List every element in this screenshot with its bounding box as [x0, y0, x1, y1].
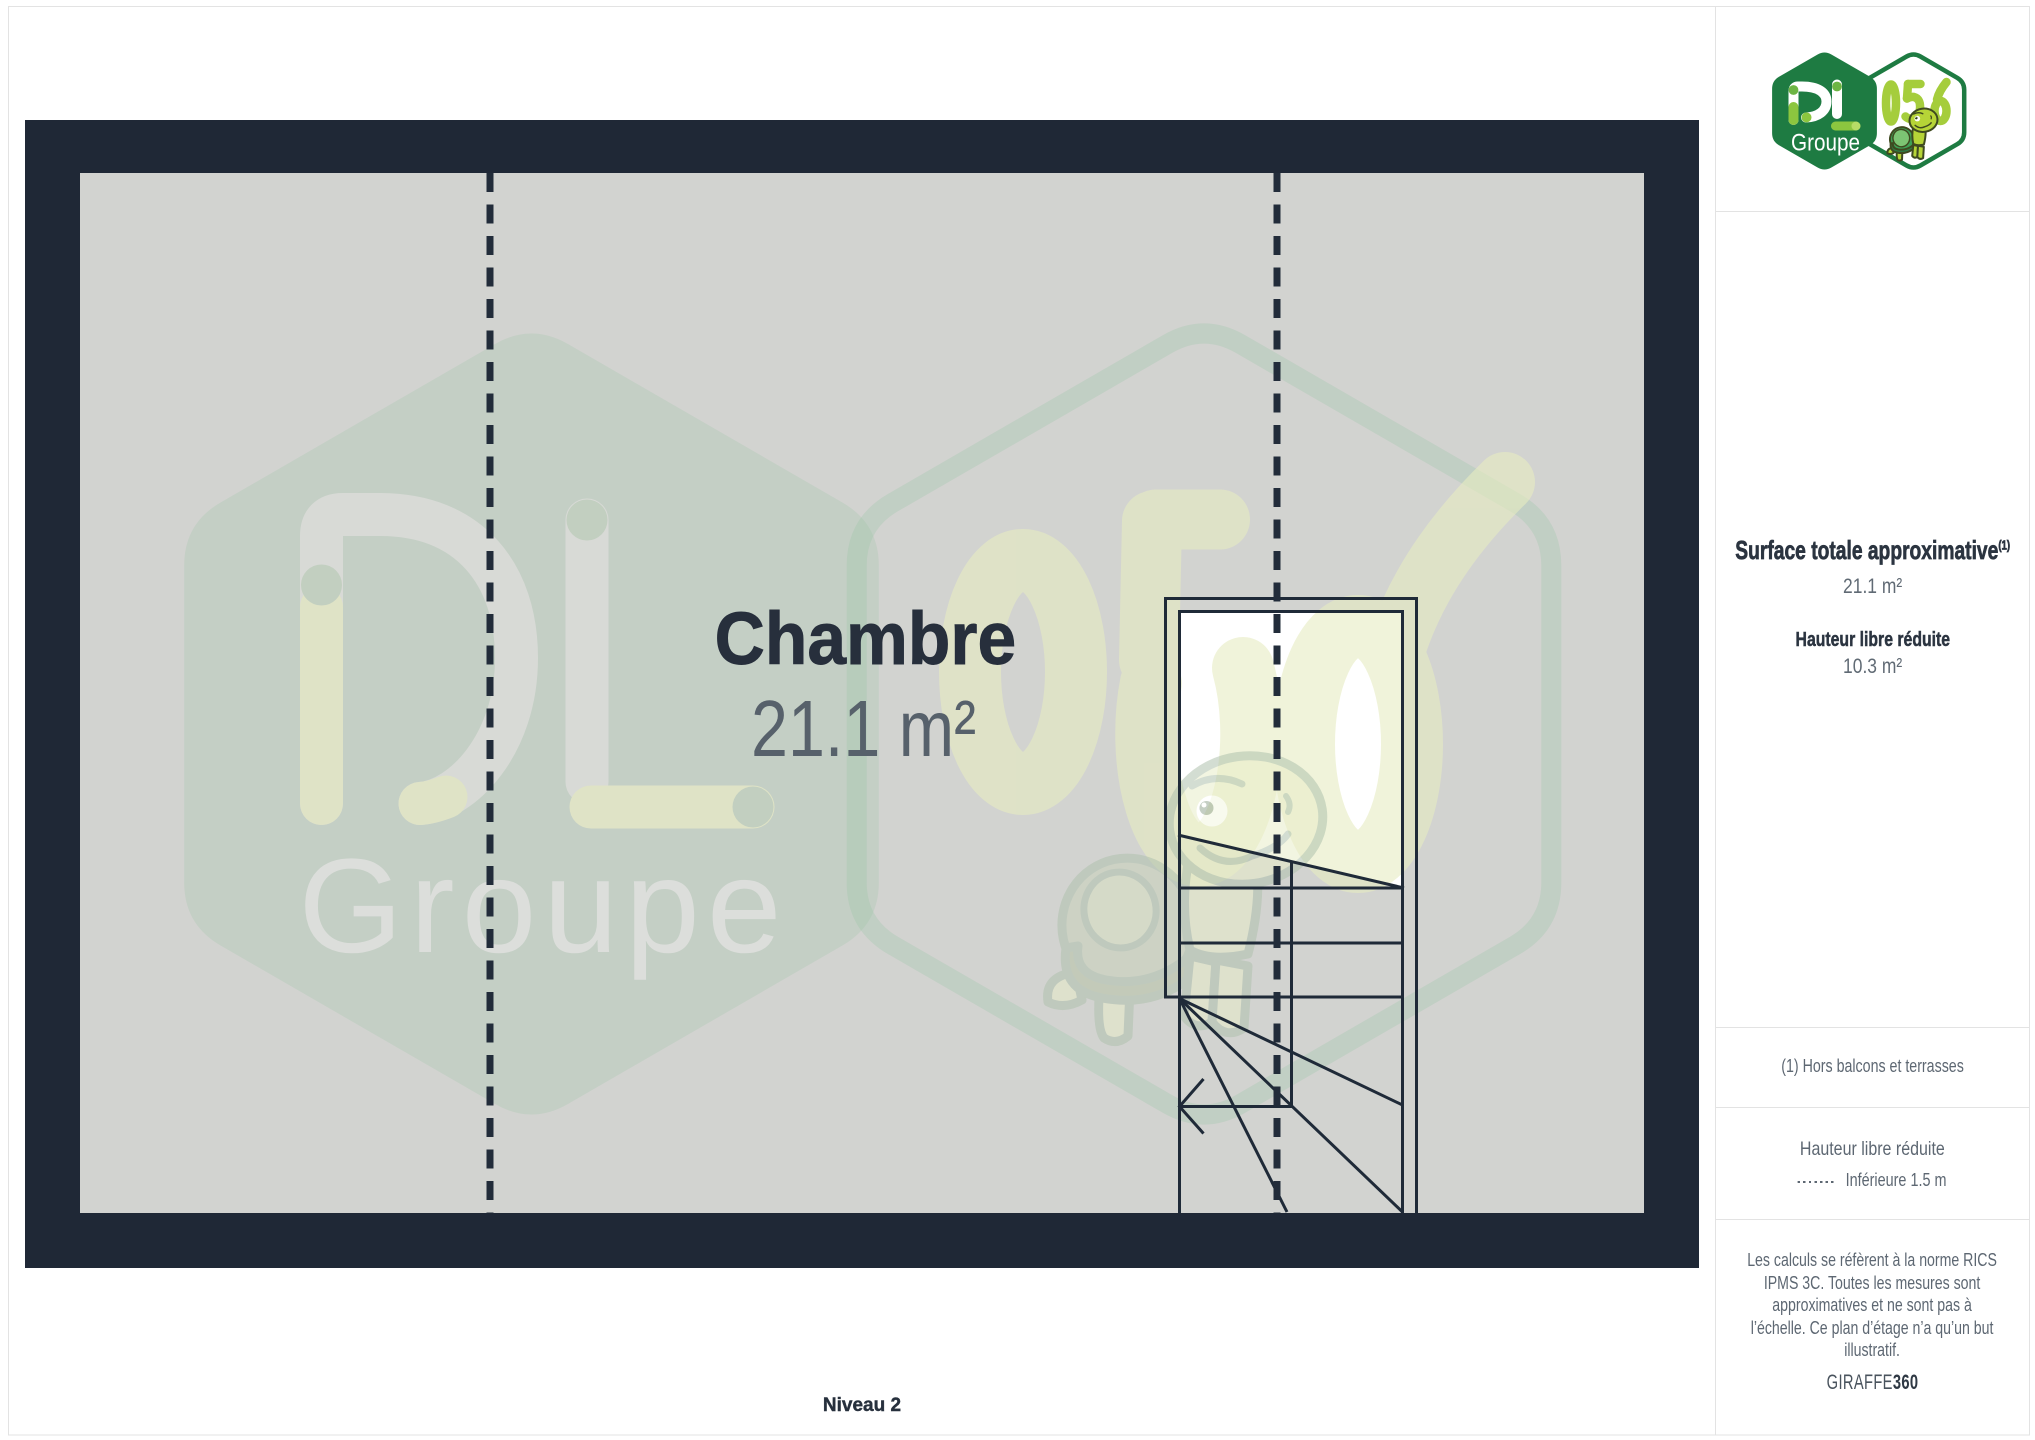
svg-text:Groupe: Groupe [1791, 130, 1860, 157]
